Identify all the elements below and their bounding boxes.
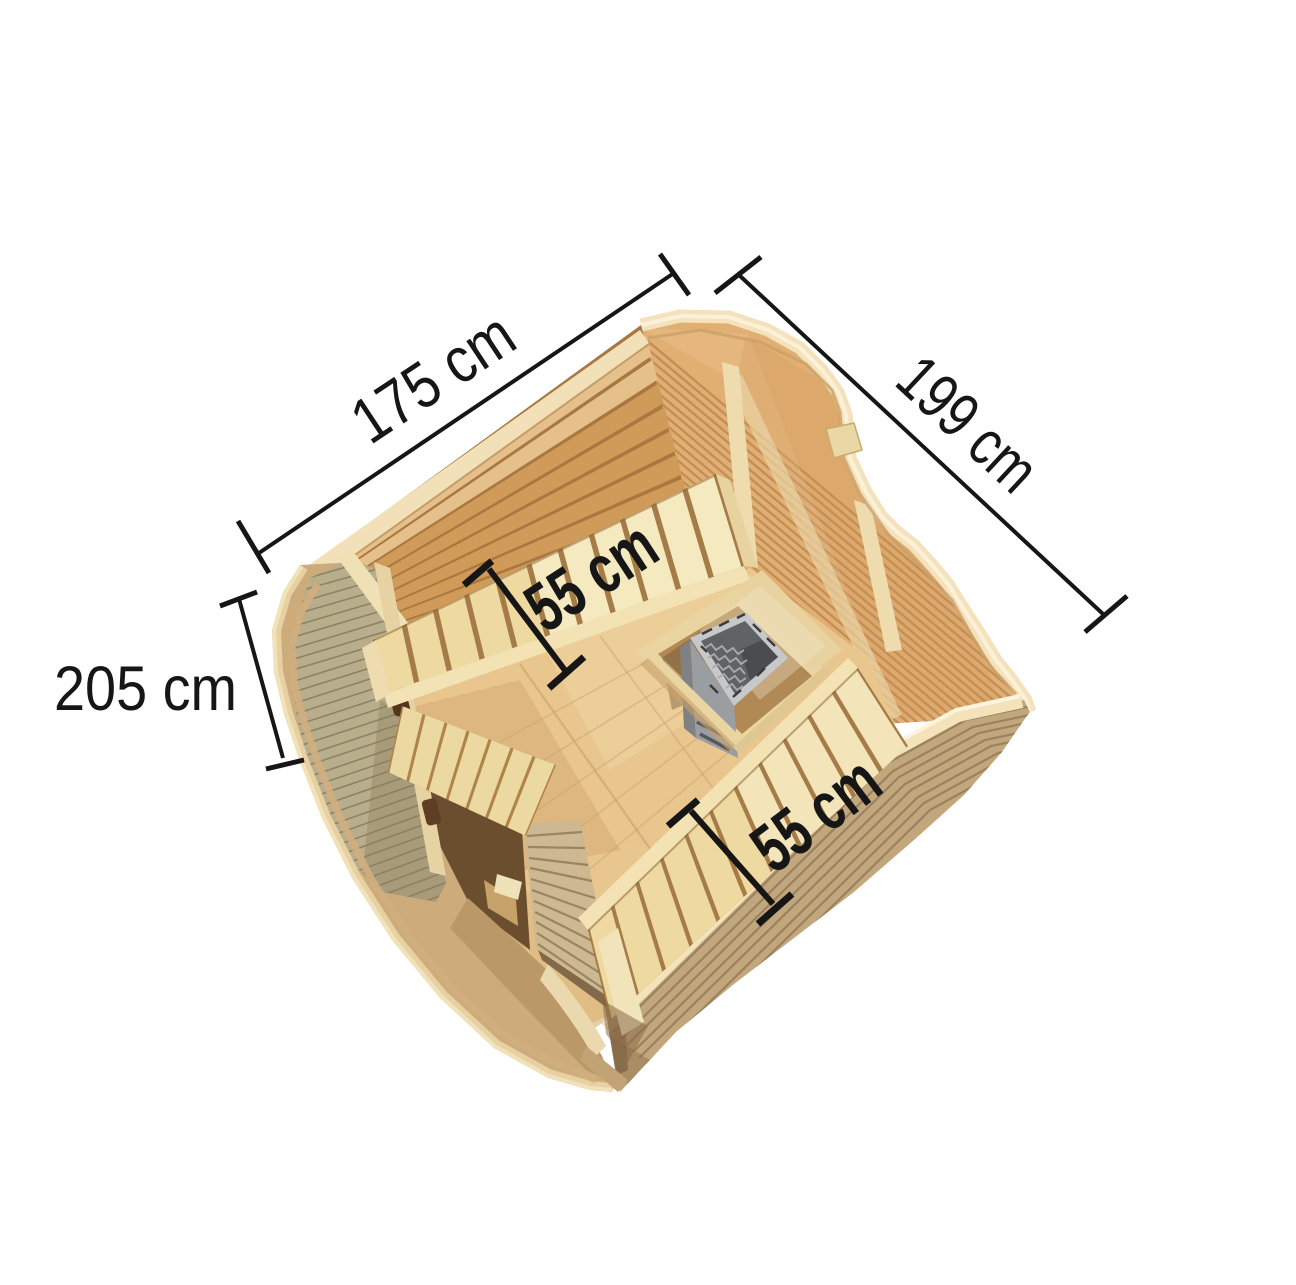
svg-text:205 cm: 205 cm bbox=[54, 654, 237, 724]
